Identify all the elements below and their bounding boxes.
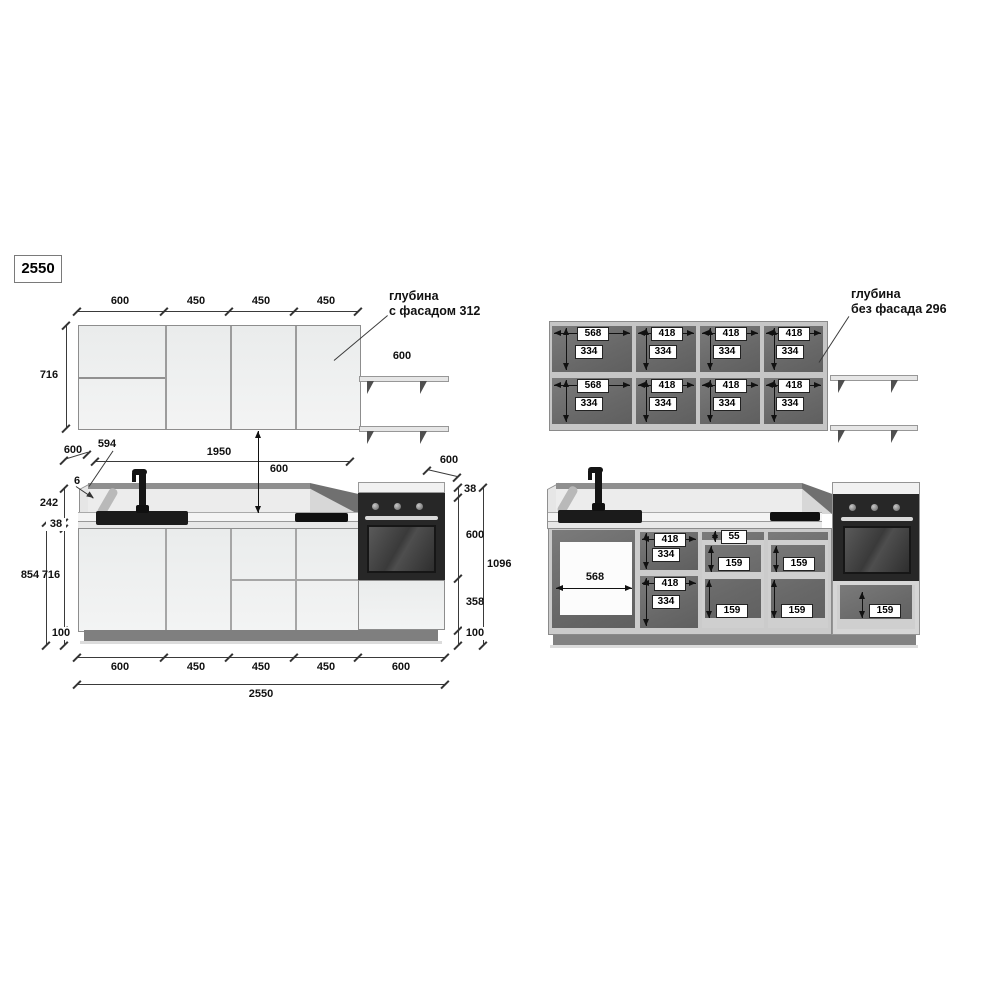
sink [96,511,188,525]
dim-plinth-height: 100 [48,627,74,640]
dim-oven-height: 600 [462,529,488,542]
dim-tick [59,456,68,465]
dim-line-left-chain [64,487,65,645]
dim-line-left-total [46,522,47,645]
dim-panel-thickness: 6 [71,475,83,488]
dim-wall-gap: 600 [264,463,294,476]
dim-arrow [646,578,647,626]
dim-s2-bot-w: 418 [651,379,683,393]
dim-s2-top-h: 334 [649,345,677,359]
dim-right-worktop: 38 [464,483,484,496]
dim-line-top-widths [77,311,359,312]
dim-arrow [711,546,712,572]
shelf-bracket [367,431,374,444]
door-gap [230,326,232,429]
dim-s1-bot-h: 334 [575,397,603,411]
wall-cabinet-run [78,325,361,430]
dim-stack3-d2: 159 [718,557,750,571]
shelf-bracket [891,380,898,393]
dim-depth-left: 600 [58,444,88,457]
note-depth-facade-1: глубина [389,289,439,303]
dim-arrow [774,328,775,370]
sink [558,510,642,523]
dim-s1-bot-w: 568 [577,379,609,393]
oven-window [367,525,436,573]
dim-depth-right: 600 [434,454,464,467]
leader-line [89,451,114,487]
oven-knob [893,504,900,511]
plinth [553,635,916,645]
dim-cab2-top-h: 334 [652,548,680,562]
door-split [79,377,165,379]
dim-base-width-3: 450 [242,661,280,674]
dim-cab2-bot-h: 334 [652,595,680,609]
dim-base-width-4: 450 [307,661,345,674]
dim-line-total-width [77,684,445,685]
dim-right-plinth: 100 [462,627,488,640]
dim-s2-bot-h: 334 [649,397,677,411]
oven-knob [849,504,856,511]
dim-sink-width: 568 [577,571,613,584]
total-width-box: 2550 [14,255,62,283]
shelf-bracket [891,430,898,443]
dim-s4-bot-h: 334 [776,397,804,411]
oven-knob [394,503,401,510]
dim-arrow [710,380,711,422]
drawer-rail [702,540,705,628]
dim-arrow [774,380,775,422]
dim-s3-bot-w: 418 [715,379,747,393]
floor-line [550,645,918,648]
dim-s4-top-h: 334 [776,345,804,359]
dim-arrow [646,380,647,422]
dim-oven-drawer: 159 [869,604,901,618]
dim-arrow [715,531,716,542]
dim-base-width-2: 450 [177,661,215,674]
tower-top-panel [358,482,445,493]
oven-knob [416,503,423,510]
plinth [84,630,438,641]
dim-wall-height: 716 [36,369,62,382]
dim-base-width-5: 600 [382,661,420,674]
drawer-rail [761,540,764,628]
dim-overhang: 594 [92,438,122,451]
dim-s2-top-w: 418 [651,327,683,341]
drawer-shelf-line [702,572,764,579]
dim-arrow [566,328,567,370]
shelf-bracket [838,430,845,443]
dim-stack4-d2: 159 [783,557,815,571]
dim-arrow [709,580,710,618]
faucet-tip [132,473,136,482]
shelf-bracket [838,380,845,393]
dim-s3-top-h: 334 [713,345,741,359]
dim-wall-width-3: 450 [242,295,280,308]
dim-arrow [566,380,567,422]
drawer-shelf-line [837,619,915,629]
shelf-bracket [367,381,374,394]
shelf-bracket [420,381,427,394]
dim-s3-top-w: 418 [715,327,747,341]
drawer-shelf-line [768,618,828,628]
cooktop [295,513,348,522]
dim-worktop-thickness: 38 [46,518,66,531]
dim-wall-width-2: 450 [177,295,215,308]
dim-line-right-chain [458,487,459,645]
floor-line [80,641,442,644]
dim-stack3-d1: 55 [721,530,747,544]
dim-s4-bot-w: 418 [778,379,810,393]
oven-front [833,494,919,581]
oven-handle [365,516,438,520]
oven-drawer-front [358,580,445,630]
faucet-tip [588,471,592,480]
dim-base-width-1: 600 [101,661,139,674]
dim-s4-top-w: 418 [778,327,810,341]
dim-stack4-d3: 159 [781,604,813,618]
dim-arrow [862,592,863,618]
dim-cab2-bot-w: 418 [654,577,686,591]
oven-window [843,526,911,574]
oven-knob [871,504,878,511]
oven-knob [372,503,379,510]
oven-tower [358,482,445,630]
drawer-split [230,579,359,581]
dim-arrow [710,328,711,370]
dim-wall-width-1: 600 [101,295,139,308]
dim-shelf-depth: 600 [382,350,422,363]
dim-run-length: 1950 [199,446,239,459]
drawer-rail [837,585,840,629]
dim-oven-drawer-height: 358 [462,596,488,609]
dim-wall-width-4: 450 [307,295,345,308]
dim-arrow [556,588,632,589]
drawer-shelf-line [702,618,764,628]
dim-s3-bot-h: 334 [713,397,741,411]
door-gap [165,326,167,429]
drawer-rail [912,585,915,629]
cooktop [770,512,820,521]
dim-line-bottom-widths [77,657,445,658]
dim-arrow [646,328,647,370]
door-gap [165,529,167,631]
dim-line-run [95,461,350,462]
drawer-rail [825,540,828,628]
faucet-base [592,503,605,511]
kitchen-drawing-canvas: 2550 600 450 450 450 716 600 глубина с ф… [0,0,1000,1000]
oven-handle [841,517,913,521]
dim-cab2-top-w: 418 [654,533,686,547]
dim-line-right-total [483,487,484,645]
dim-left-total: 854 [16,569,44,582]
dim-s1-top-h: 334 [575,345,603,359]
note-depth-no-facade-2: без фасада 296 [851,302,947,316]
dim-arrow [646,533,647,569]
dim-line-wall-height [66,325,67,428]
faucet-base [136,505,149,513]
base-cabinet-run [78,528,360,632]
dim-line-depth-right [427,469,457,477]
dim-arrow-wall-gap [258,431,259,513]
dim-right-total: 1096 [487,558,521,571]
dim-s1-top-w: 568 [577,327,609,341]
shelf-bracket [420,431,427,444]
note-depth-facade-2: с фасадом 312 [389,304,480,318]
dim-arrow [776,546,777,572]
oven-front [358,493,445,580]
drawer-shelf-line [768,540,828,545]
dim-total-width: 2550 [240,688,282,701]
door-gap [295,326,297,429]
drawer-shelf-line [768,572,828,579]
dim-stack3-d3: 159 [716,604,748,618]
dim-splash-height: 242 [36,497,62,510]
note-depth-no-facade-1: глубина [851,287,901,301]
dim-arrow [774,580,775,618]
